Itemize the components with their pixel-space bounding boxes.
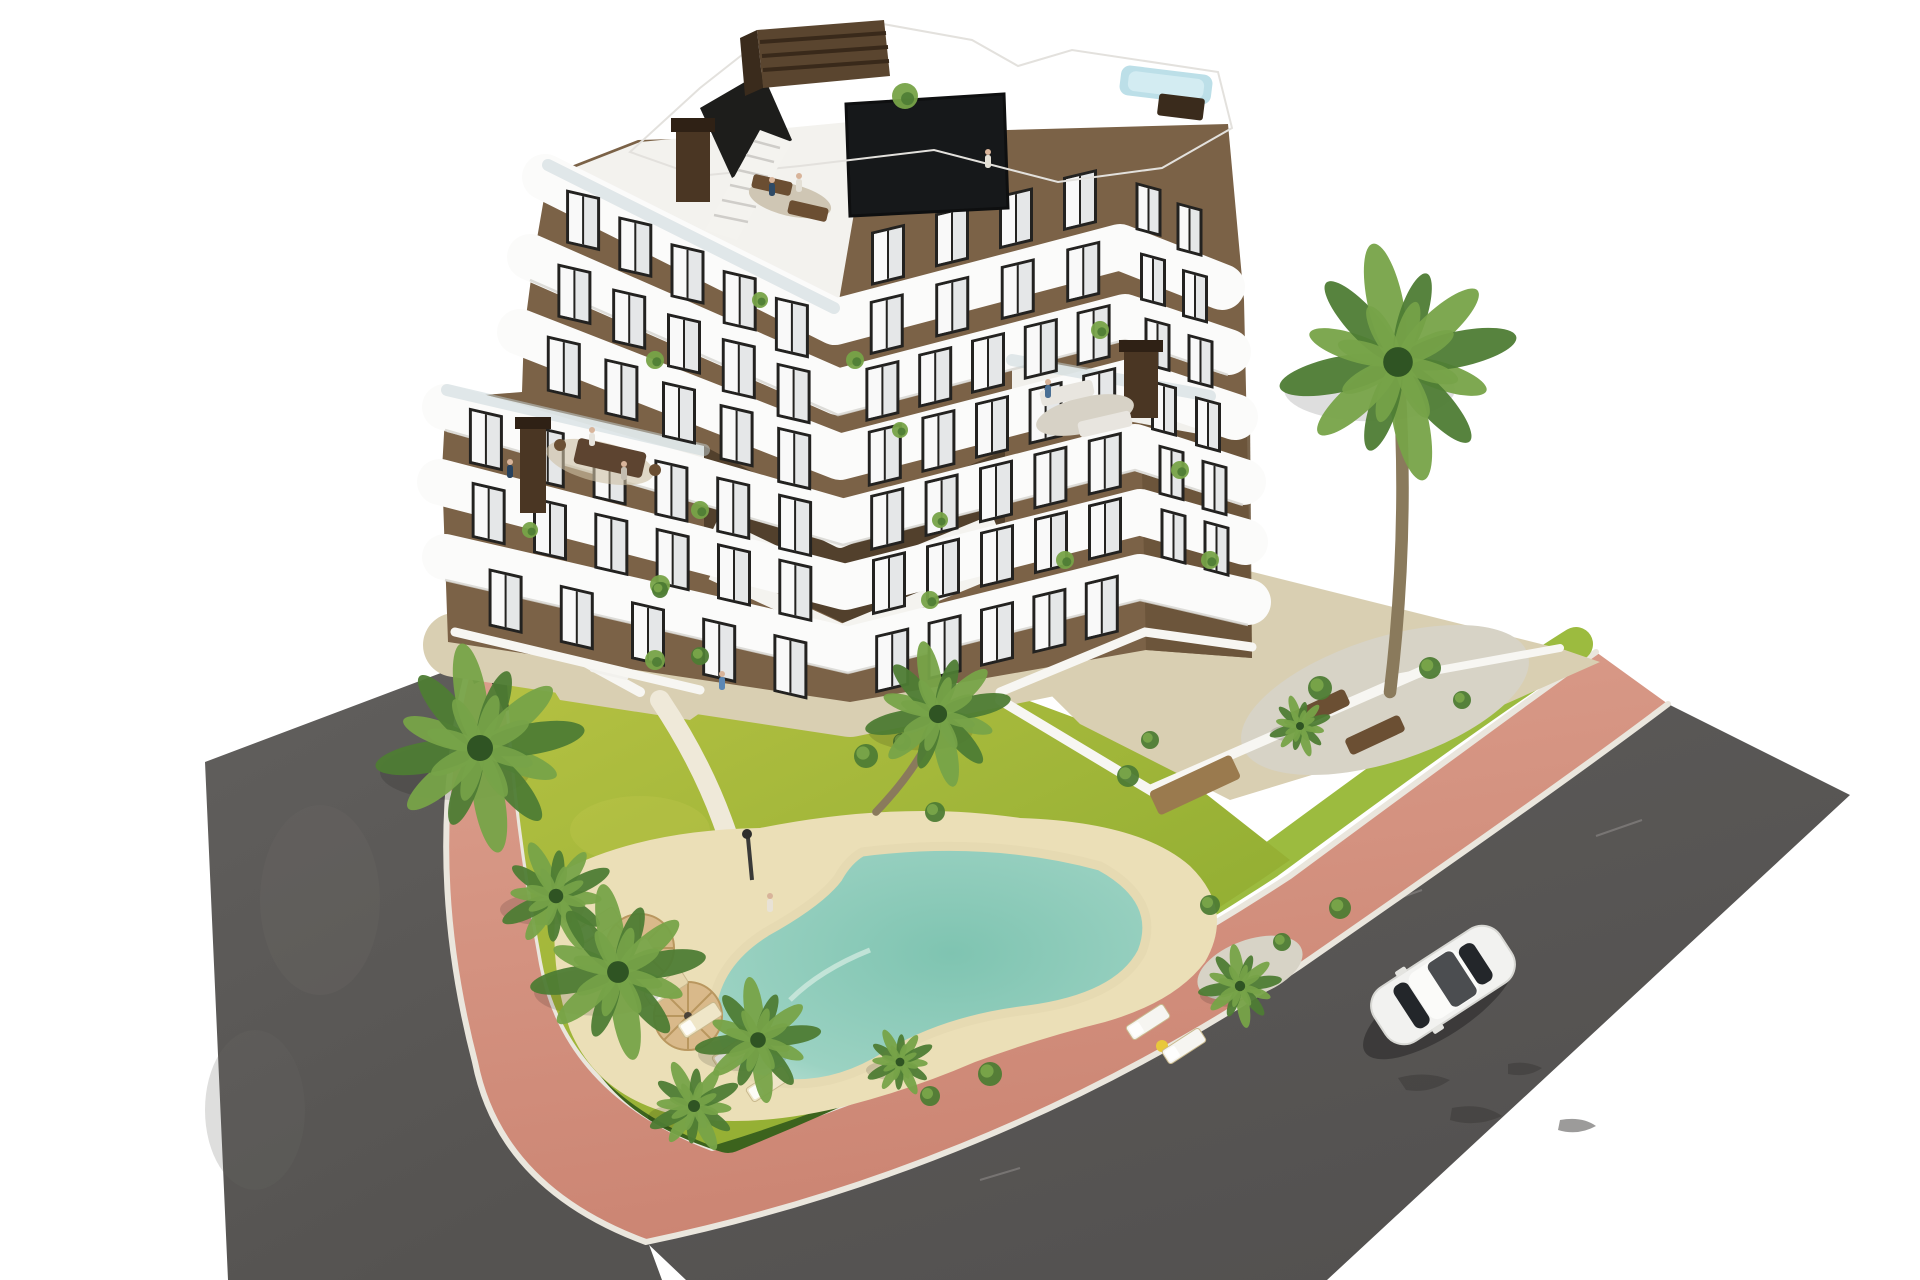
person-figure <box>719 671 725 690</box>
window <box>557 263 591 325</box>
window <box>1088 497 1122 561</box>
potted-plant <box>846 351 864 369</box>
window <box>871 224 905 286</box>
render-canvas <box>0 0 1920 1280</box>
window <box>1161 508 1187 565</box>
shrub <box>1273 933 1291 951</box>
window <box>778 558 812 622</box>
window <box>1177 202 1203 257</box>
shrub <box>1453 691 1471 709</box>
window <box>722 338 756 400</box>
potted-plant <box>932 512 948 528</box>
window <box>1085 574 1119 640</box>
window <box>604 358 638 422</box>
window <box>667 313 701 375</box>
window <box>777 427 811 491</box>
window <box>1088 432 1122 496</box>
window <box>612 288 646 350</box>
person-figure <box>767 893 773 912</box>
potted-plant <box>522 522 538 538</box>
shrub <box>1117 765 1139 787</box>
window <box>870 487 904 551</box>
shrub <box>1141 731 1159 749</box>
potted-plant <box>892 422 908 438</box>
shrub <box>1329 897 1351 919</box>
window <box>775 297 809 359</box>
window <box>671 243 705 305</box>
window <box>472 482 506 546</box>
potted-plant <box>691 501 709 519</box>
potted-plant <box>645 650 665 670</box>
window <box>1066 241 1100 303</box>
window <box>1182 269 1208 324</box>
window <box>980 601 1014 667</box>
person-figure <box>985 149 991 168</box>
window <box>1033 446 1067 510</box>
window <box>979 459 1013 523</box>
potted-plant <box>752 292 768 308</box>
potted-plant <box>1056 551 1074 569</box>
window <box>935 205 969 267</box>
potted-plant <box>921 591 939 609</box>
window <box>975 395 1009 459</box>
road-wear-patch <box>205 1030 305 1190</box>
person-figure <box>769 177 775 196</box>
window <box>980 524 1014 588</box>
window <box>773 634 807 700</box>
potted-plant <box>646 351 664 369</box>
window <box>716 476 750 540</box>
window <box>1140 252 1166 307</box>
window <box>935 276 969 338</box>
window <box>1032 588 1066 654</box>
window <box>469 408 503 472</box>
person-figure <box>1045 379 1051 398</box>
window <box>1188 334 1214 389</box>
potted-plant <box>1201 551 1219 569</box>
window <box>778 493 812 557</box>
shrub <box>854 744 878 768</box>
window <box>566 189 600 251</box>
window <box>1195 396 1221 453</box>
shrub <box>1200 895 1220 915</box>
window <box>865 360 899 422</box>
shrub <box>925 802 945 822</box>
window <box>594 512 628 576</box>
potted-plant <box>892 83 918 109</box>
shrub <box>920 1086 940 1106</box>
window <box>720 404 754 468</box>
potted-plant <box>1171 461 1189 479</box>
window <box>717 543 751 607</box>
window <box>777 363 811 425</box>
shrub <box>1419 657 1441 679</box>
window <box>1202 460 1228 517</box>
window <box>872 551 906 615</box>
person-figure <box>507 459 513 478</box>
window <box>489 568 523 634</box>
window <box>547 335 581 399</box>
window <box>870 293 904 355</box>
potted-plant <box>1091 321 1109 339</box>
window <box>1001 258 1035 320</box>
shrub <box>1308 676 1332 700</box>
window <box>560 585 594 651</box>
window <box>971 332 1005 394</box>
window <box>723 270 757 332</box>
window <box>918 346 952 408</box>
window <box>1136 182 1162 237</box>
penthouse-glass-wall <box>846 94 1008 216</box>
shrub <box>652 582 668 598</box>
person-figure <box>589 427 595 446</box>
person-figure <box>796 173 802 192</box>
window <box>1024 318 1058 380</box>
road-wear-patch <box>260 805 380 995</box>
window <box>921 409 955 473</box>
person-figure <box>621 461 627 480</box>
scene-svg <box>0 0 1920 1280</box>
window <box>662 381 696 445</box>
shrub <box>691 647 709 665</box>
shrub <box>978 1062 1002 1086</box>
window <box>618 216 652 278</box>
